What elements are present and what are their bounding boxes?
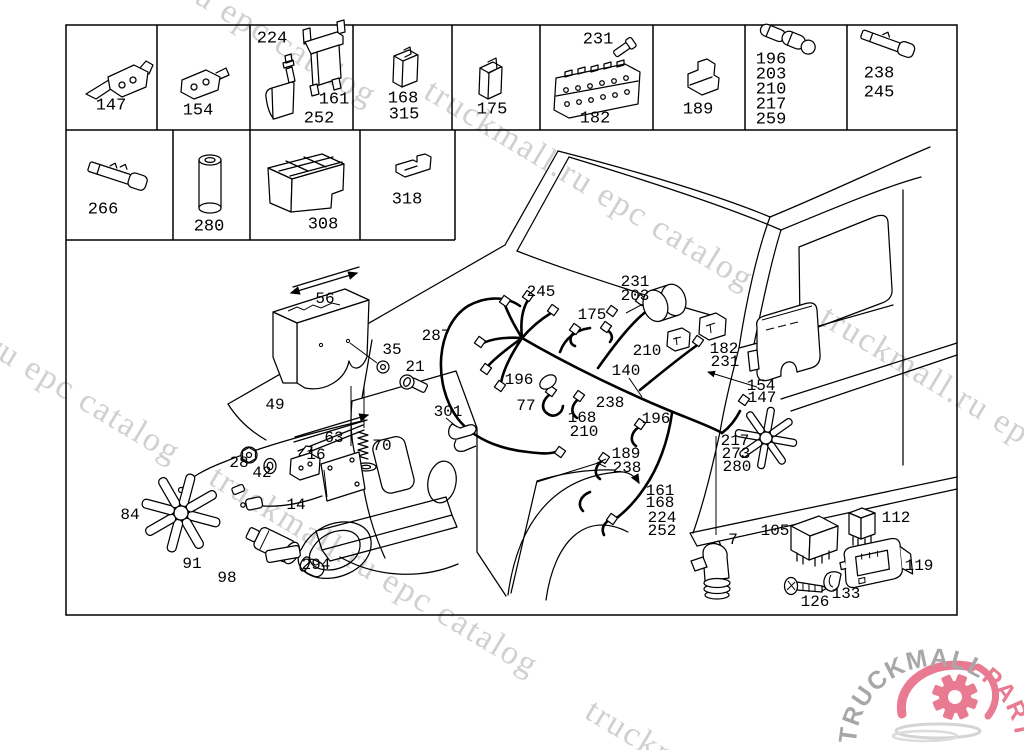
grid-part-label: 231 [583, 32, 614, 49]
callout-label: 28 [229, 455, 248, 471]
callout-label: 196 [505, 372, 534, 388]
callout-label: 140 [612, 363, 641, 379]
callout-label: 14 [286, 497, 305, 513]
relay-holder-119 [839, 538, 913, 589]
grid-part-label: 189 [683, 102, 714, 119]
callout-label: 84 [120, 507, 139, 523]
grid-part-label: 308 [308, 217, 339, 234]
callout-label: 21 [405, 359, 424, 375]
callout-label: 175 [578, 307, 607, 323]
grid-part-label: 182 [580, 111, 611, 128]
callout-label: 287 [422, 328, 451, 344]
fan-wheel-84 [141, 473, 221, 553]
callout-label: 105 [761, 523, 790, 539]
callout-label: 119 [905, 558, 934, 574]
callout-label: 280 [723, 459, 752, 475]
callout-label: 238 [613, 460, 642, 476]
grid-part-label: 175 [477, 102, 508, 119]
callout-label: 35 [382, 342, 401, 358]
callout-label: 112 [882, 510, 911, 526]
callout-label: 245 [527, 284, 556, 300]
wheel-arch-arrow [508, 472, 639, 595]
grid-part-label: 147 [96, 98, 127, 115]
pump-7 [691, 541, 730, 599]
relay-112 [849, 508, 875, 547]
callout-label: 77 [516, 398, 535, 414]
grid-part-label: 266 [88, 202, 119, 219]
grid-part-label: 259 [756, 112, 787, 129]
callout-label: 42 [252, 465, 271, 481]
callout-label: 63 [324, 430, 343, 446]
grid-part-label: 154 [183, 103, 214, 120]
callout-label: 133 [832, 586, 861, 602]
callout-label: 7 [728, 532, 738, 548]
callout-label: 210 [570, 424, 599, 440]
grid-part-label: 245 [864, 85, 895, 102]
callout-label: 126 [801, 594, 830, 610]
callout-label: 16 [306, 447, 325, 463]
grid-part-label: 252 [304, 111, 335, 128]
callout-label: 238 [596, 395, 625, 411]
callout-label: 56 [315, 291, 334, 307]
callout-label: 294 [302, 557, 331, 573]
screw-126 [785, 578, 828, 595]
callout-label: 231 [711, 354, 740, 370]
grid-part-label: 318 [392, 192, 423, 209]
control-module [748, 303, 820, 381]
callout-label: 210 [633, 343, 662, 359]
callout-label: 147 [748, 390, 777, 406]
callout-label: 252 [648, 523, 677, 539]
relay-105 [791, 516, 838, 566]
callout-label: 203 [621, 288, 650, 304]
callout-label: 196 [642, 411, 671, 427]
grid-part-label: 224 [257, 31, 288, 48]
grid-part-label: 161 [319, 92, 350, 109]
callout-label: 49 [265, 397, 284, 413]
bolt-21 [400, 375, 428, 393]
connector-301 [449, 424, 477, 451]
callout-label: 301 [434, 404, 463, 420]
callout-label: 91 [182, 556, 201, 572]
callout-label: 98 [217, 570, 236, 586]
parts-diagram-page: truckmall.ru epc catalogtruckmall.ru epc… [0, 0, 1024, 750]
grid-part-label: 315 [389, 107, 420, 124]
grid-part-label: 280 [194, 219, 225, 236]
callout-label: 70 [372, 438, 391, 454]
grid-part-label: 238 [864, 66, 895, 83]
